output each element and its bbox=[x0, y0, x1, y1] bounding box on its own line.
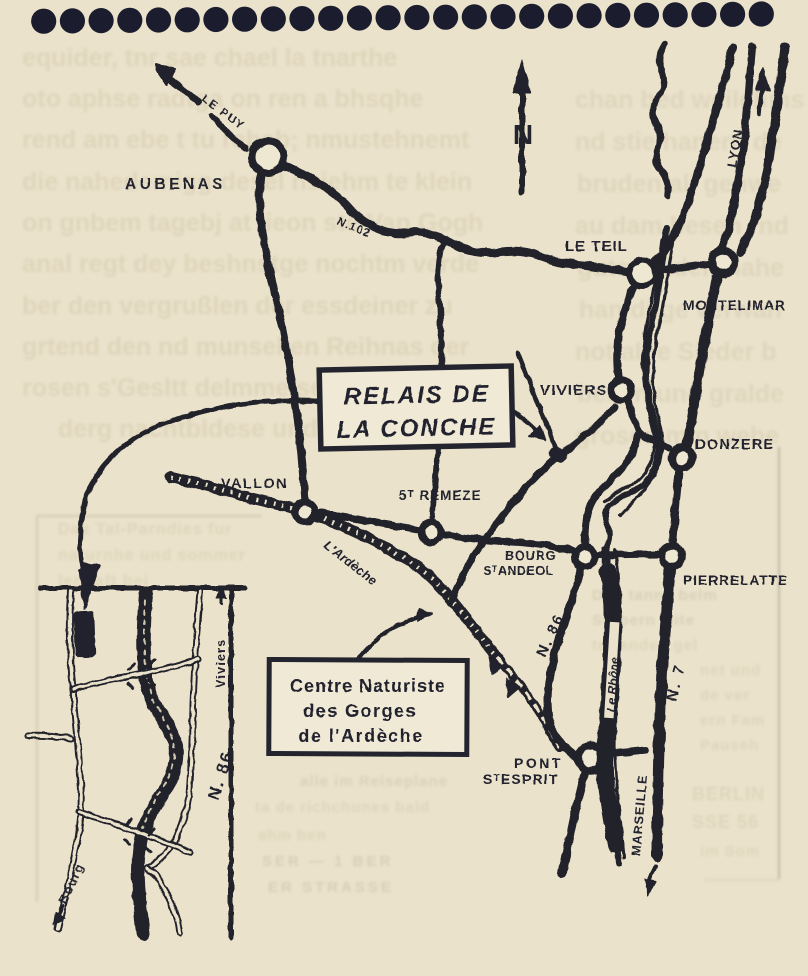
svg-text:Viviers: Viviers bbox=[213, 639, 228, 688]
svg-text:PIERRELATTE: PIERRELATTE bbox=[683, 572, 788, 588]
svg-text:net und: net und bbox=[700, 662, 761, 679]
svg-text:not alne Sieder b: not alne Sieder b bbox=[575, 338, 776, 366]
svg-text:SSE 56: SSE 56 bbox=[692, 812, 759, 832]
svg-text:AUBENAS: AUBENAS bbox=[125, 176, 226, 193]
svg-text:ER STRASSE: ER STRASSE bbox=[268, 879, 394, 896]
svg-text:BERLIN: BERLIN bbox=[692, 784, 765, 804]
svg-text:LA CONCHE: LA CONCHE bbox=[336, 413, 496, 443]
svg-text:Das Tal-Parndies fur: Das Tal-Parndies fur bbox=[58, 521, 232, 538]
svg-text:LE TEIL: LE TEIL bbox=[565, 238, 628, 255]
svg-text:anal regt dey beshnstge nochtm: anal regt dey beshnstge nochtm verde bbox=[22, 250, 479, 278]
svg-text:des Gorges: des Gorges bbox=[303, 701, 417, 721]
svg-text:naturnhe und sommer: naturnhe und sommer bbox=[58, 547, 246, 564]
svg-text:Centre Naturiste: Centre Naturiste bbox=[290, 676, 446, 696]
svg-text:bruden all genwe: bruden all genwe bbox=[577, 170, 781, 198]
svg-text:die nahedemigg-desel nsiehm te: die nahedemigg-desel nsiehm te klein bbox=[22, 168, 472, 196]
svg-text:MONTELIMAR: MONTELIMAR bbox=[683, 297, 786, 313]
svg-text:nd stie hanern de: nd stie hanern de bbox=[575, 128, 782, 156]
svg-text:ahm ben: ahm ben bbox=[258, 827, 327, 844]
svg-text:ern Fam: ern Fam bbox=[700, 712, 765, 729]
svg-text:Pauseh: Pauseh bbox=[700, 737, 759, 754]
svg-text:ber den vergrußlen der essdein: ber den vergrußlen der essdeiner zu bbox=[22, 292, 453, 320]
svg-text:SER — 1 BER: SER — 1 BER bbox=[262, 853, 393, 870]
svg-text:de l'Ardèche: de l'Ardèche bbox=[298, 726, 423, 746]
svg-text:VIVIERS: VIVIERS bbox=[540, 382, 608, 399]
svg-text:im Som: im Som bbox=[700, 843, 760, 860]
svg-text:grtend den nd munselien Reihna: grtend den nd munselien Reihnas der bbox=[22, 333, 470, 361]
svg-text:DONZERE: DONZERE bbox=[695, 437, 774, 453]
svg-text:de ver: de ver bbox=[700, 687, 750, 704]
svg-text:VALLON: VALLON bbox=[221, 475, 288, 491]
svg-text:PONT: PONT bbox=[514, 755, 563, 771]
svg-text:N: N bbox=[513, 119, 533, 150]
svg-text:RELAIS DE: RELAIS DE bbox=[343, 380, 490, 410]
svg-text:alle im Reiseplane: alle im Reiseplane bbox=[300, 773, 448, 790]
svg-text:BOURG: BOURG bbox=[505, 549, 557, 563]
svg-text:ta de richchunes bald: ta de richchunes bald bbox=[255, 799, 430, 816]
svg-text:equider, tnr sae chael la tna: equider, tnr sae chael la tnarthe bbox=[22, 44, 397, 72]
